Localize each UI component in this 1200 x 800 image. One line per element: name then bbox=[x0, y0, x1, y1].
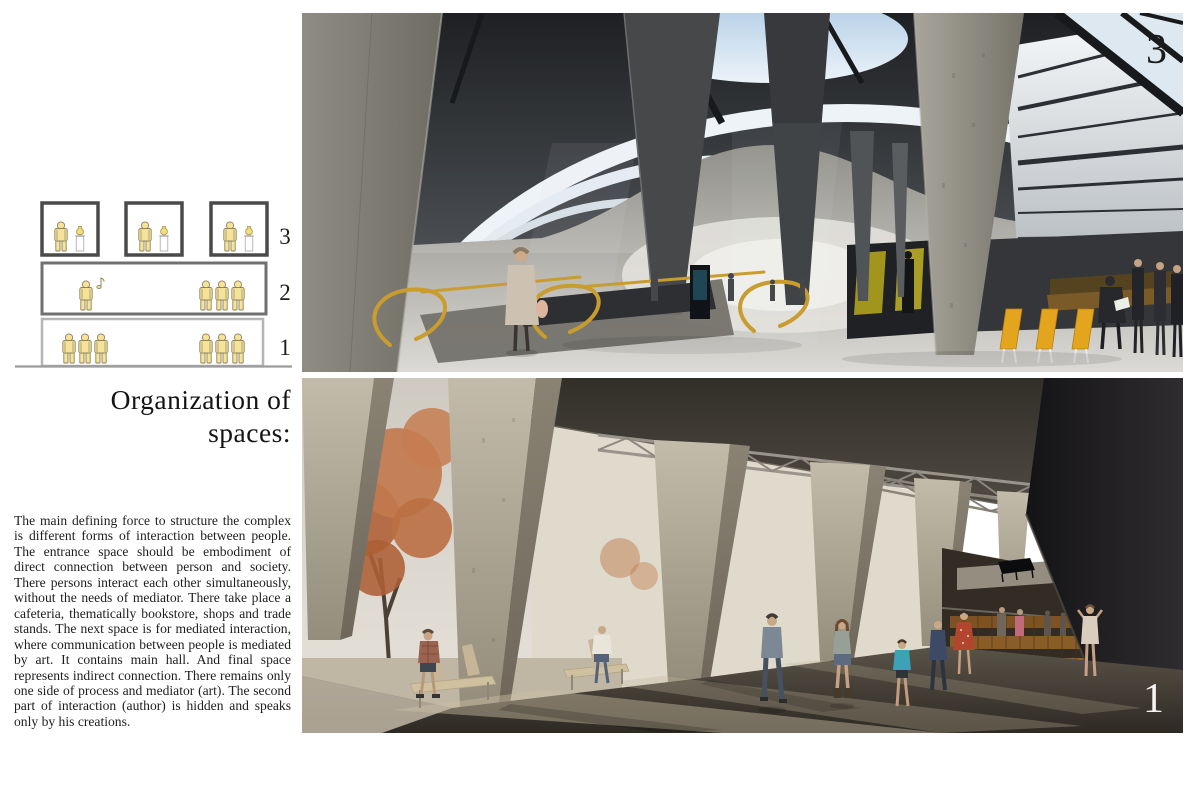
presentation-board: 3 2 1 Organization of spaces: The main d… bbox=[0, 0, 1200, 800]
info-kiosk bbox=[690, 265, 710, 319]
page-title-line2: spaces: bbox=[0, 416, 291, 449]
figure-label-3: 3 bbox=[1146, 29, 1167, 71]
organization-diagram-graphic bbox=[0, 200, 300, 376]
floor-shadow bbox=[562, 336, 802, 354]
top-render-illustration bbox=[302, 13, 1183, 372]
description-paragraph: The main defining force to structure the… bbox=[14, 513, 291, 729]
level-number-1: 1 bbox=[272, 335, 298, 361]
render-space-3: 3 bbox=[302, 13, 1183, 372]
diagram-level-2 bbox=[42, 263, 266, 314]
organization-diagram: 3 2 1 bbox=[0, 200, 300, 376]
vase-icon bbox=[159, 227, 168, 252]
vase-icon bbox=[244, 227, 253, 252]
render-space-1: 1 bbox=[302, 378, 1183, 733]
vase-icon bbox=[75, 227, 84, 252]
page-title-line1: Organization of bbox=[0, 383, 291, 416]
floor-shadow bbox=[842, 351, 1122, 367]
level-number-3: 3 bbox=[272, 224, 298, 250]
page-title: Organization of spaces: bbox=[0, 383, 291, 449]
bottom-render-illustration bbox=[302, 378, 1183, 733]
diagram-level-3 bbox=[42, 203, 267, 255]
diagram-level-1 bbox=[15, 319, 292, 367]
figure-label-1: 1 bbox=[1143, 678, 1164, 720]
level-number-2: 2 bbox=[272, 280, 298, 306]
